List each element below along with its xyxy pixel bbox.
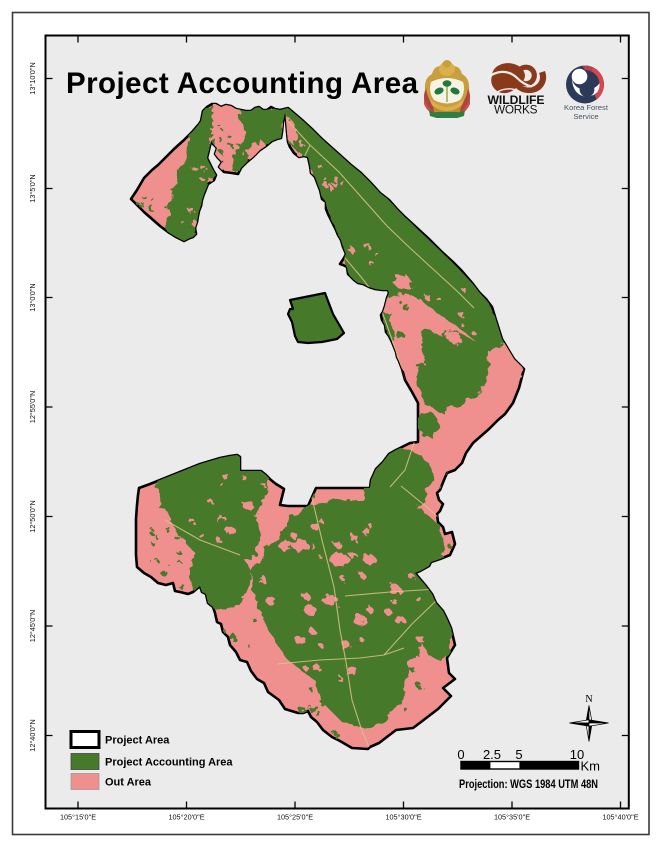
svg-text:105°40'0"E: 105°40'0"E: [602, 813, 638, 822]
svg-text:Service: Service: [573, 112, 598, 121]
svg-text:12°45'0"N: 12°45'0"N: [28, 610, 37, 642]
svg-text:105°25'0"E: 105°25'0"E: [277, 813, 313, 822]
svg-text:N: N: [585, 694, 592, 705]
svg-text:13°5'0"N: 13°5'0"N: [28, 174, 37, 202]
svg-text:13°0'0"N: 13°0'0"N: [28, 283, 37, 311]
svg-text:2.5: 2.5: [483, 747, 501, 762]
svg-text:105°35'0"E: 105°35'0"E: [494, 813, 530, 822]
svg-text:WORKS: WORKS: [494, 103, 538, 117]
svg-text:105°20'0"E: 105°20'0"E: [168, 813, 204, 822]
svg-text:12°55'0"N: 12°55'0"N: [28, 391, 37, 423]
svg-text:0: 0: [457, 747, 464, 762]
svg-text:12°50'0"N: 12°50'0"N: [28, 500, 37, 532]
svg-text:Projection: WGS 1984 UTM 48N: Projection: WGS 1984 UTM 48N: [459, 777, 598, 791]
svg-text:Project Accounting Area: Project Accounting Area: [66, 67, 419, 100]
svg-text:Korea Forest: Korea Forest: [564, 103, 609, 112]
svg-text:Km: Km: [581, 759, 601, 774]
svg-text:Project Area: Project Area: [105, 735, 170, 747]
svg-text:Project Accounting Area: Project Accounting Area: [105, 757, 233, 769]
svg-text:Out Area: Out Area: [105, 777, 152, 789]
svg-text:105°15'0"E: 105°15'0"E: [60, 813, 96, 822]
svg-text:13°10'0"N: 13°10'0"N: [28, 62, 37, 94]
svg-text:105°30'0"E: 105°30'0"E: [385, 813, 421, 822]
svg-text:5: 5: [515, 747, 522, 762]
svg-text:12°40'0"N: 12°40'0"N: [28, 719, 37, 751]
